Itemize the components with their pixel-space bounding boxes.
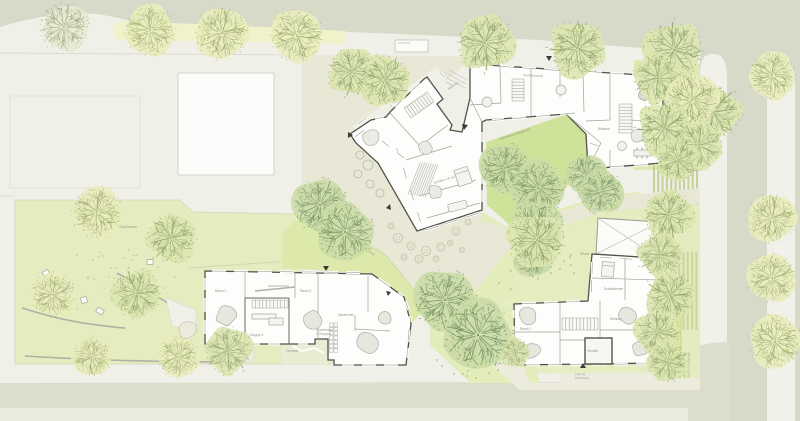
svg-text:Wiese: Wiese (580, 252, 590, 256)
svg-text:Raum 1: Raum 1 (520, 327, 531, 331)
svg-text:Wohnen: Wohnen (598, 127, 610, 131)
svg-text:Garderobe: Garderobe (338, 313, 353, 317)
svg-text:Gruppe 1: Gruppe 1 (250, 333, 264, 337)
svg-text:Wohnen: Wohnen (610, 317, 622, 321)
svg-text:2 Gruppen: 2 Gruppen (316, 332, 331, 336)
svg-text:Spielwiese: Spielwiese (120, 225, 137, 229)
svg-text:Technik: Technik (587, 349, 598, 353)
svg-text:Terrasse: Terrasse (286, 349, 298, 353)
svg-text:Wohnhaus: Wohnhaus (575, 376, 590, 380)
svg-text:Schlafzimmer: Schlafzimmer (604, 287, 624, 291)
svg-text:Raum 2: Raum 2 (300, 289, 311, 293)
svg-text:Raum 1: Raum 1 (215, 289, 226, 293)
